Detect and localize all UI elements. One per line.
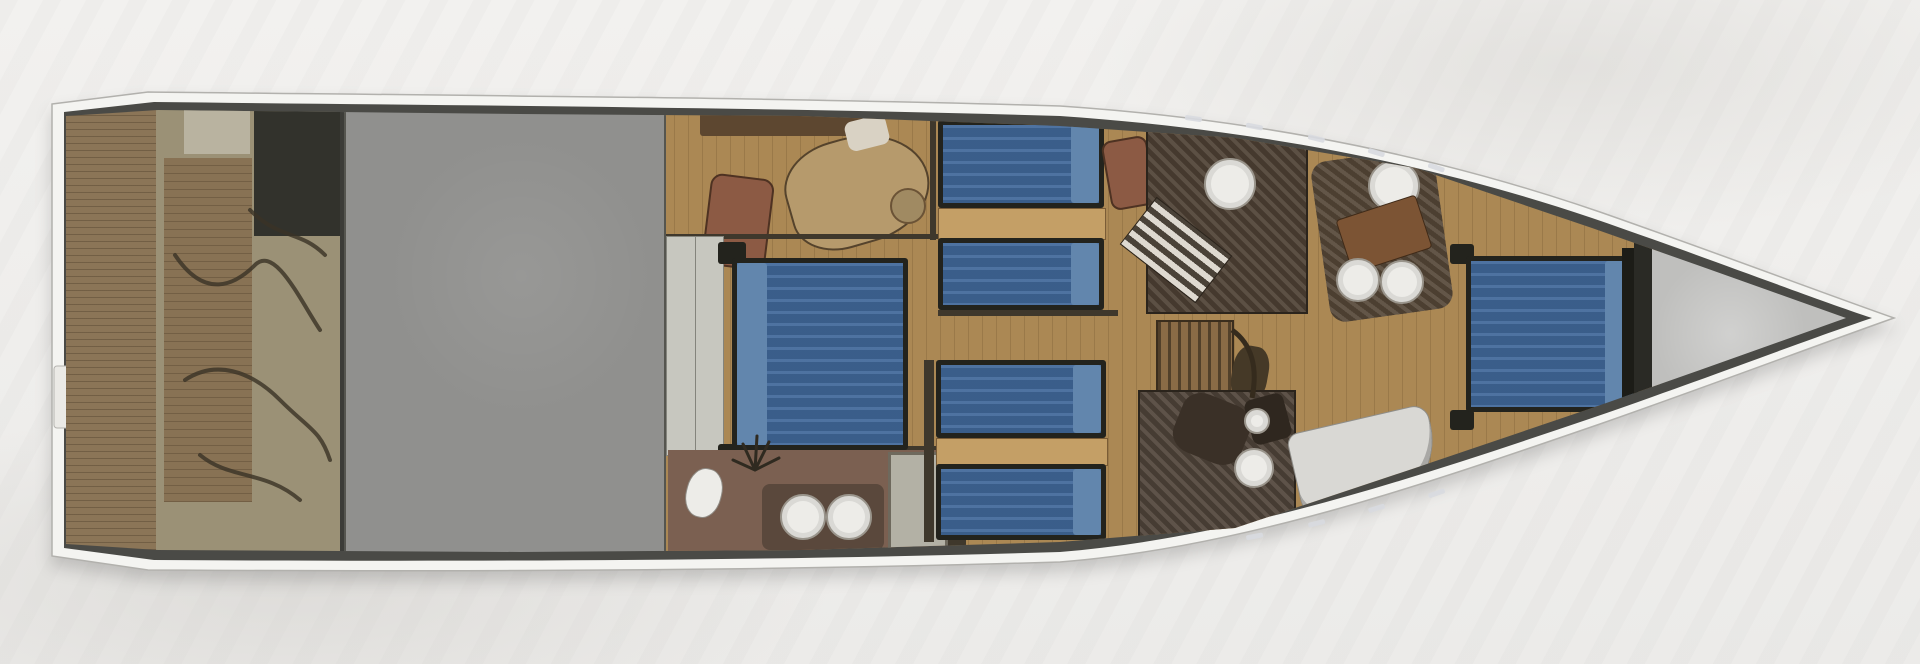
- staircase: [1156, 320, 1234, 396]
- twin-nightstand: [936, 438, 1108, 466]
- round-fixture: [1244, 408, 1270, 434]
- wall-lounge-twin: [930, 110, 936, 240]
- vip-wardrobe: [666, 236, 724, 456]
- twin-bed: [938, 120, 1104, 208]
- round-sink: [1204, 158, 1256, 210]
- master-nightstand: [1450, 410, 1474, 430]
- wall-twin-bottom: [924, 360, 934, 542]
- wall-twin-corridor: [938, 310, 1118, 316]
- tender-storage-block: [254, 98, 340, 236]
- twin-bed: [936, 464, 1106, 540]
- master-double-bed: [1466, 256, 1638, 412]
- beach-club-teak-floor: [164, 158, 252, 502]
- round-sink: [780, 494, 826, 540]
- twin-bed: [936, 360, 1106, 438]
- round-sink: [826, 494, 872, 540]
- vip-pillows: [737, 263, 767, 445]
- twin-pillow: [1071, 243, 1099, 305]
- lounge-stool: [890, 188, 926, 224]
- twin-pillow: [1073, 469, 1101, 535]
- twin-pillow: [1073, 365, 1101, 433]
- round-stool: [1336, 258, 1380, 302]
- round-stool: [1380, 260, 1424, 304]
- swim-platform: [62, 102, 161, 554]
- twin-pillow: [1071, 125, 1099, 203]
- twin-nightstand: [938, 208, 1106, 240]
- vip-double-bed: [732, 258, 908, 450]
- engine-room: [340, 104, 666, 556]
- round-sink: [1234, 448, 1274, 488]
- twin-bed: [938, 238, 1104, 310]
- yacht-floor-plan: [0, 0, 1920, 664]
